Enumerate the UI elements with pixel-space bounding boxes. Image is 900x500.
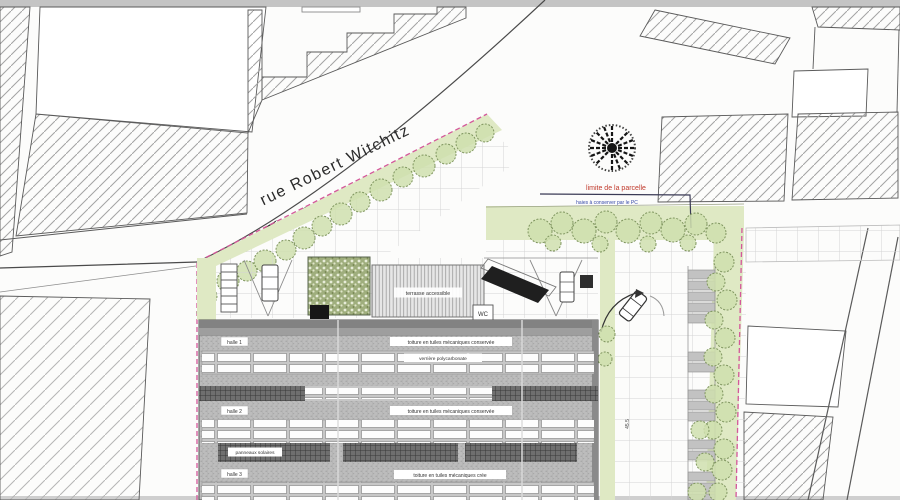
hall-2-label: halle 2 — [227, 409, 242, 415]
skylight-band-mid — [305, 388, 492, 399]
panel-band-right — [492, 386, 598, 401]
skylight-band-1 — [202, 351, 594, 374]
hall-1-label: halle 1 — [227, 340, 242, 346]
wc-label: WC — [478, 312, 489, 318]
neighbor-top-small-block — [302, 7, 360, 12]
hedge-note-label: haies à conserver par le PC — [576, 200, 638, 206]
planted-square-kiosk — [310, 305, 329, 319]
main-building: verrière polycarbonate panneaux solaires… — [199, 320, 598, 500]
panel-band-left — [199, 386, 305, 401]
terrace-left-green — [197, 258, 216, 320]
panels-label: panneaux solaires — [236, 450, 276, 456]
neighbor-bottomleft-building — [0, 296, 150, 500]
skylight-label: verrière polycarbonate — [419, 356, 467, 362]
panel-block-2 — [343, 443, 458, 462]
site-plan-page: rue Robert Witchitz — [0, 0, 900, 500]
neighbor-right-hatch-block — [744, 412, 833, 500]
aisle-dimension: 45.5 — [625, 419, 631, 429]
courtyard-green-strip — [600, 240, 615, 500]
roof-label-3: toiture en tuiles mécaniques crée — [413, 473, 487, 479]
skylight-band-2 — [202, 420, 594, 443]
topright-sidewalk — [746, 225, 900, 262]
skylight-band-3 — [202, 482, 594, 500]
technical-box — [580, 275, 593, 288]
terrace-strip: terrasse accessible WC — [197, 257, 598, 321]
scan-edge-top — [0, 0, 900, 7]
parked-car-2 — [560, 272, 574, 302]
roof-label-2: toiture en tuiles mécaniques conservée — [408, 409, 495, 415]
terrace-label: terrasse accessible — [406, 291, 451, 297]
neighbor-topright-b — [812, 7, 900, 30]
bike-rack — [221, 264, 237, 312]
roof-label-1: toiture en tuiles mécaniques conservée — [408, 340, 495, 346]
neighbor-topright-white — [792, 69, 868, 117]
parked-car-1 — [262, 265, 278, 301]
parcel-limit-label: limite de la parcelle — [586, 185, 646, 192]
neighbor-topright-d — [658, 114, 788, 202]
neighbor-topright-c — [792, 112, 898, 200]
site-plan-svg: rue Robert Witchitz — [0, 0, 900, 500]
neighbor-topleft-white-block — [36, 7, 266, 132]
building-right-edge — [592, 320, 598, 500]
hall-3-label: halle 3 — [227, 472, 242, 478]
